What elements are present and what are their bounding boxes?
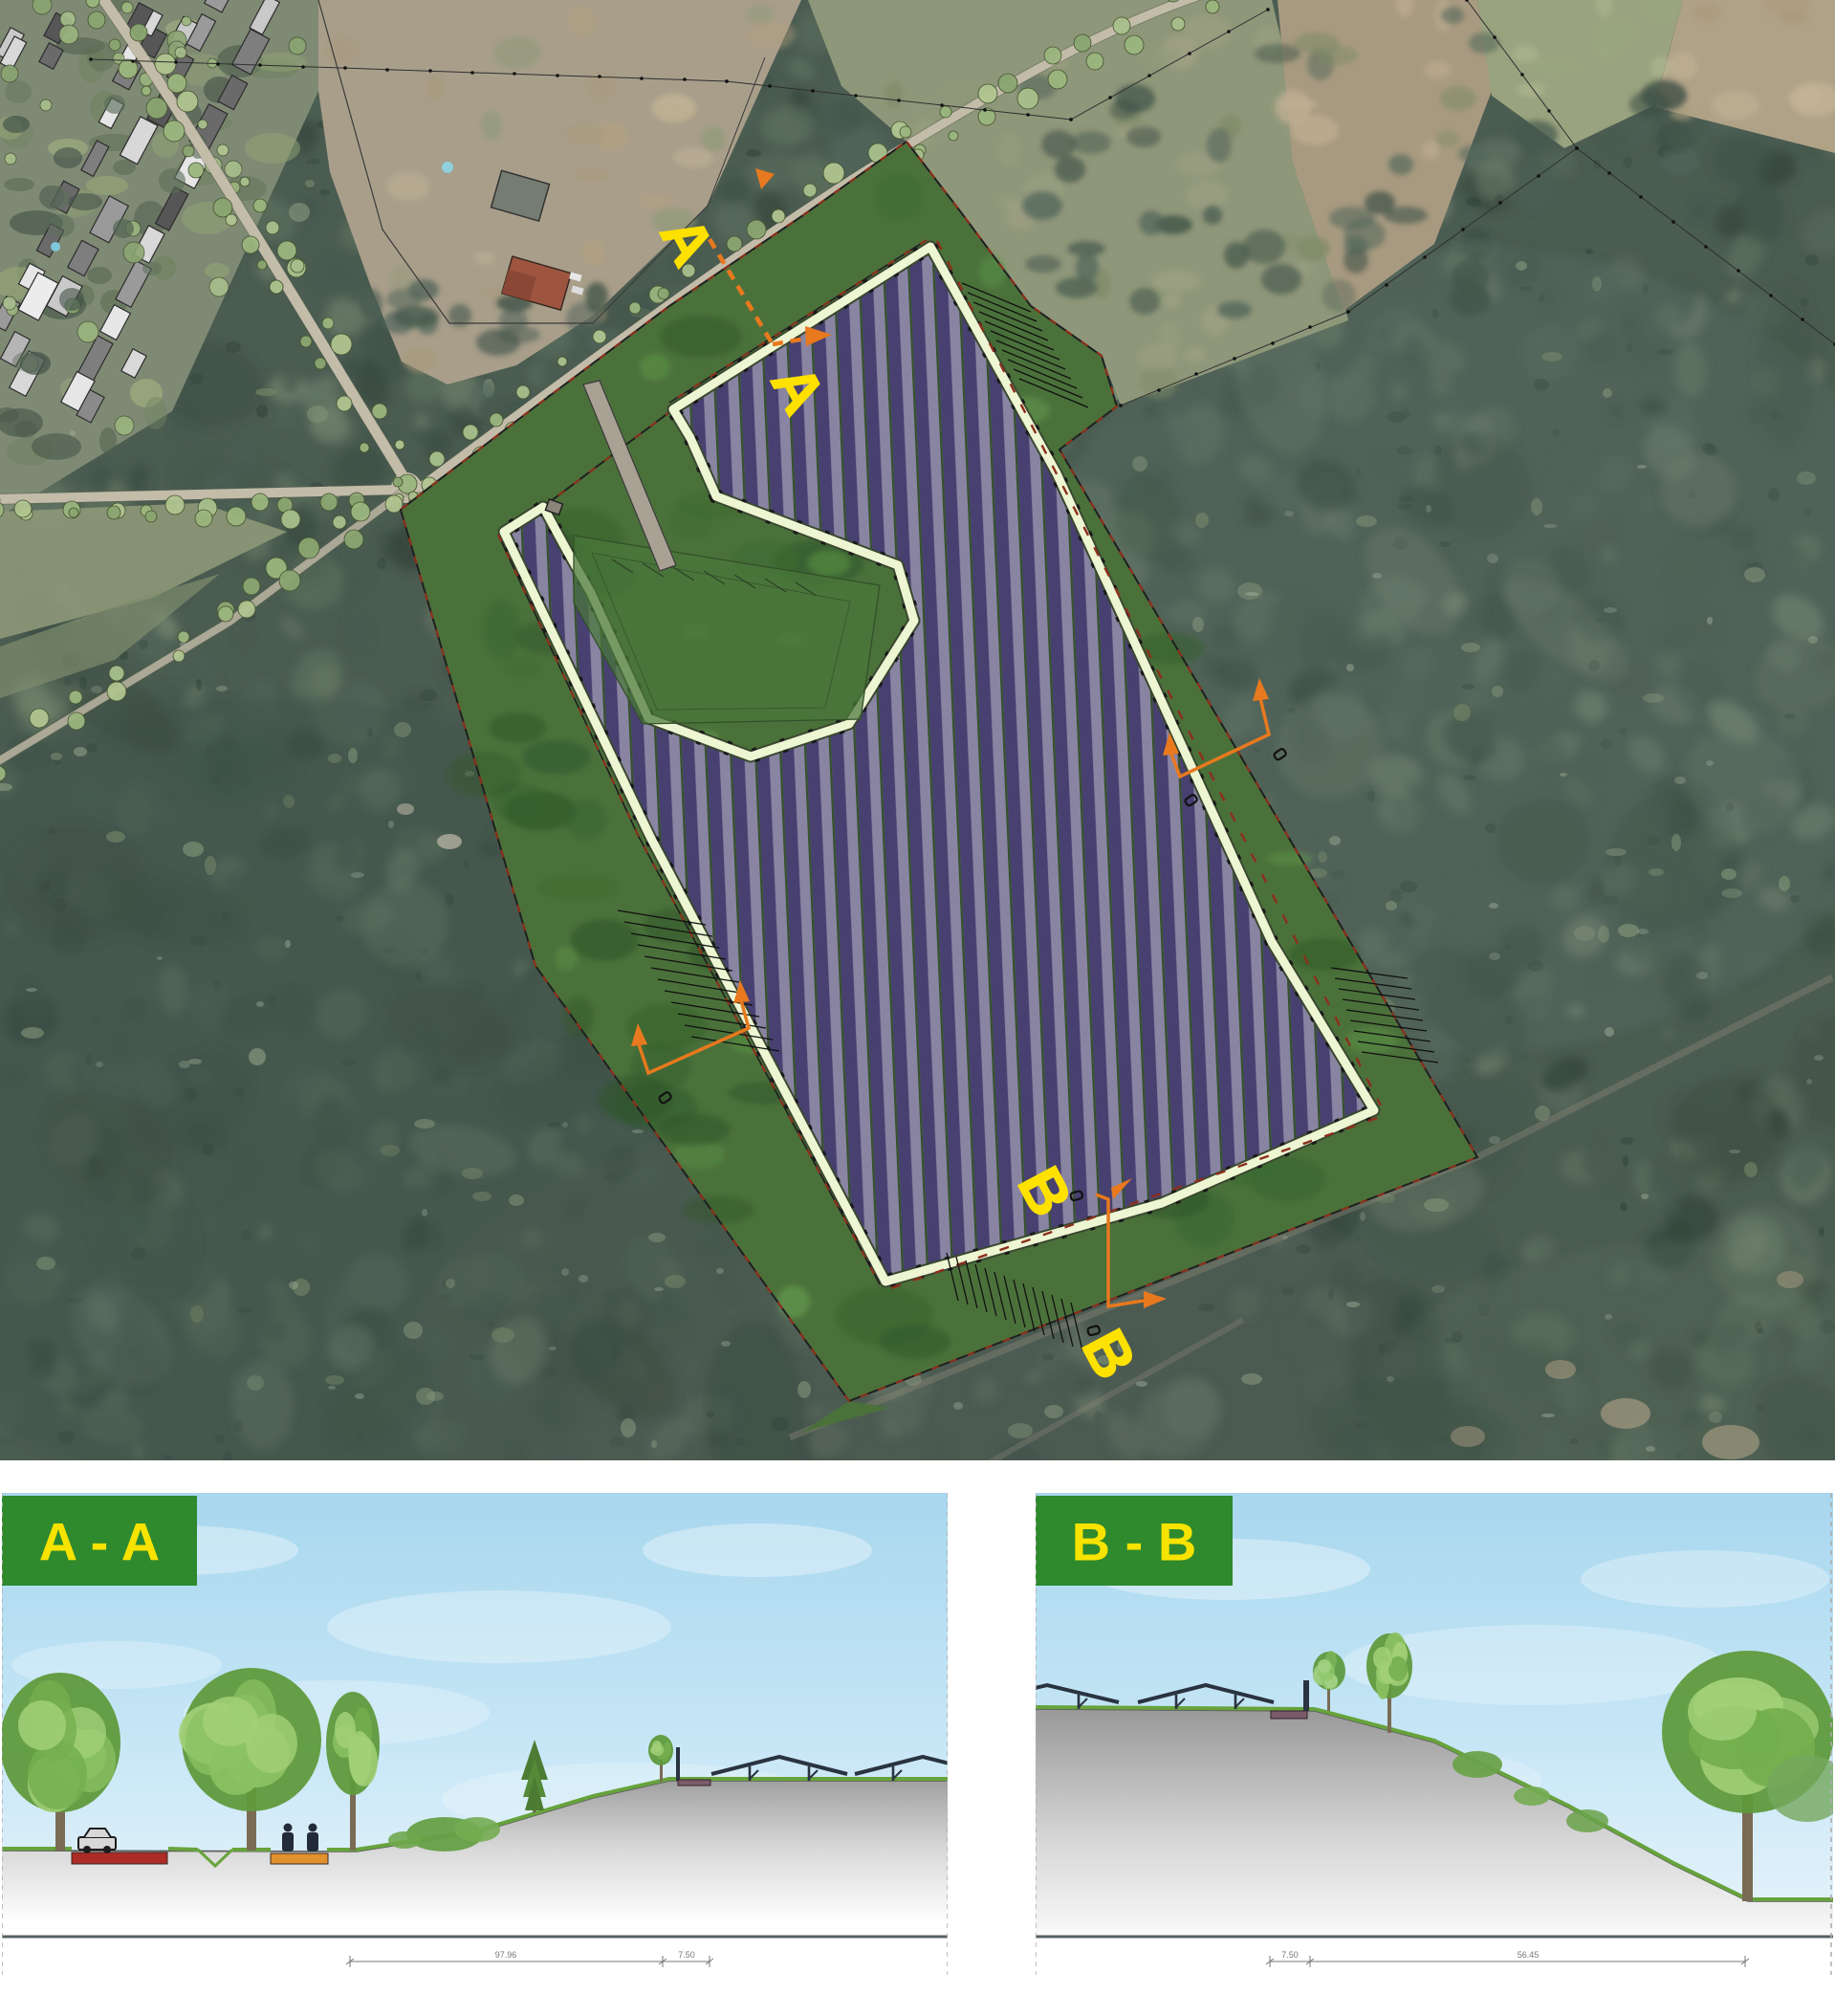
svg-text:B - B: B - B <box>1072 1512 1197 1572</box>
svg-text:7.50: 7.50 <box>1281 1950 1299 1960</box>
svg-text:56.45: 56.45 <box>1518 1950 1540 1960</box>
svg-text:97.96: 97.96 <box>495 1950 517 1960</box>
svg-text:7.50: 7.50 <box>678 1950 695 1960</box>
svg-text:A - A: A - A <box>39 1512 161 1572</box>
